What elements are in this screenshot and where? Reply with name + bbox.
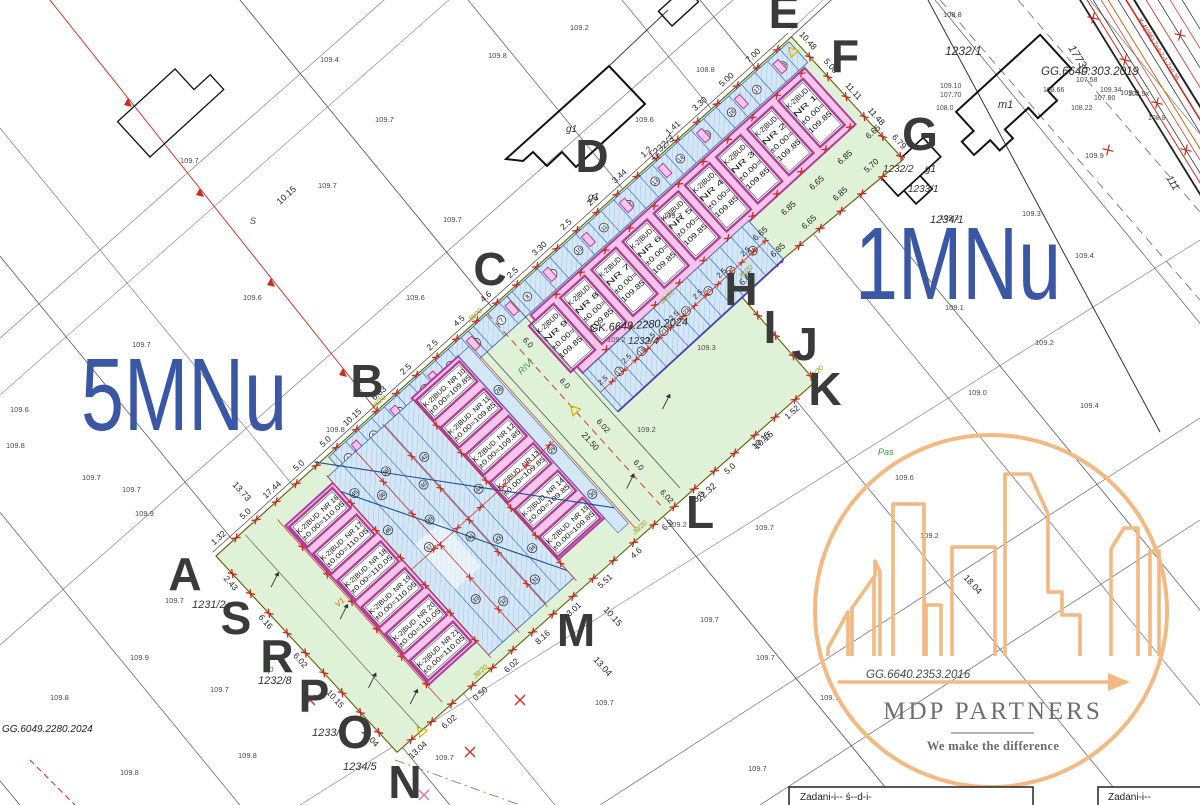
svg-text:109.7: 109.7 bbox=[318, 181, 337, 190]
svg-text:109.9: 109.9 bbox=[1085, 151, 1104, 160]
svg-text:109.7: 109.7 bbox=[663, 211, 682, 220]
svg-text:B: B bbox=[350, 355, 383, 407]
svg-text:108.22: 108.22 bbox=[1071, 105, 1093, 112]
svg-text:109.6: 109.6 bbox=[635, 115, 654, 124]
svg-text:109.7: 109.7 bbox=[375, 115, 394, 124]
svg-text:g1: g1 bbox=[925, 164, 936, 175]
svg-text:109.7: 109.7 bbox=[82, 473, 101, 482]
svg-text:S: S bbox=[250, 216, 256, 226]
svg-text:I: I bbox=[764, 301, 777, 353]
svg-text:GG.6049.2280.2024: GG.6049.2280.2024 bbox=[2, 724, 93, 735]
svg-text:A: A bbox=[168, 548, 201, 600]
svg-text:E: E bbox=[769, 0, 800, 38]
svg-text:m1: m1 bbox=[998, 99, 1013, 111]
svg-text:K: K bbox=[808, 363, 841, 415]
svg-text:109.7: 109.7 bbox=[700, 615, 719, 624]
svg-text:108.8: 108.8 bbox=[943, 10, 962, 19]
svg-text:109.8: 109.8 bbox=[238, 751, 257, 760]
svg-text:109.7: 109.7 bbox=[443, 215, 462, 224]
svg-text:109.2: 109.2 bbox=[1035, 338, 1054, 347]
svg-text:S: S bbox=[221, 592, 252, 644]
svg-text:109.9: 109.9 bbox=[135, 509, 154, 518]
svg-text:109.8: 109.8 bbox=[488, 51, 507, 60]
svg-text:107.70: 107.70 bbox=[940, 92, 962, 99]
svg-text:N: N bbox=[388, 756, 421, 805]
svg-text:109.7: 109.7 bbox=[180, 156, 199, 165]
svg-text:109.8: 109.8 bbox=[120, 768, 139, 777]
svg-text:MDP PARTNERS: MDP PARTNERS bbox=[883, 698, 1103, 725]
svg-text:P: P bbox=[299, 670, 330, 722]
svg-text:109.2: 109.2 bbox=[570, 23, 589, 32]
svg-text:107.58: 107.58 bbox=[1076, 77, 1098, 84]
svg-text:1232/2: 1232/2 bbox=[883, 164, 914, 175]
svg-text:109.8: 109.8 bbox=[50, 693, 69, 702]
svg-text:109.8: 109.8 bbox=[6, 441, 25, 450]
svg-text:109.6: 109.6 bbox=[10, 405, 29, 414]
svg-text:109.3: 109.3 bbox=[697, 343, 716, 352]
svg-text:1234/5: 1234/5 bbox=[343, 761, 378, 773]
svg-text:109.4: 109.4 bbox=[1080, 401, 1099, 410]
svg-text:109.7: 109.7 bbox=[435, 753, 454, 762]
svg-text:Zadani-i-- ś--d-i-: Zadani-i-- ś--d-i- bbox=[800, 792, 872, 803]
svg-text:109.2: 109.2 bbox=[637, 425, 656, 434]
svg-text:1233/1: 1233/1 bbox=[908, 184, 939, 195]
svg-text:107.80: 107.80 bbox=[1094, 95, 1116, 102]
svg-text:109.6: 109.6 bbox=[406, 293, 425, 302]
svg-text:109.6: 109.6 bbox=[895, 473, 914, 482]
svg-text:109.9x: 109.9x bbox=[1128, 91, 1150, 98]
svg-text:GG.6640.2353.2016: GG.6640.2353.2016 bbox=[866, 669, 971, 681]
svg-text:109.7: 109.7 bbox=[210, 685, 229, 694]
svg-text:1232/1: 1232/1 bbox=[945, 44, 982, 58]
svg-text:109.7: 109.7 bbox=[755, 523, 774, 532]
svg-text:M: M bbox=[557, 604, 595, 656]
svg-text:H: H bbox=[724, 263, 757, 315]
svg-text:109.8: 109.8 bbox=[326, 425, 345, 434]
svg-text:D: D bbox=[575, 130, 608, 182]
svg-text:108.66: 108.66 bbox=[1043, 87, 1065, 94]
svg-text:108.0: 108.0 bbox=[936, 105, 954, 112]
svg-text:5MNu: 5MNu bbox=[81, 338, 287, 452]
svg-text:1232/4: 1232/4 bbox=[628, 336, 659, 347]
svg-text:109.6: 109.6 bbox=[243, 293, 262, 302]
svg-text:We make the difference: We make the difference bbox=[927, 739, 1060, 753]
svg-text:108.9: 108.9 bbox=[1148, 115, 1166, 122]
svg-text:C: C bbox=[473, 243, 506, 295]
svg-text:g1: g1 bbox=[588, 192, 599, 203]
svg-text:F: F bbox=[831, 30, 859, 82]
svg-text:1MNu: 1MNu bbox=[855, 207, 1061, 321]
svg-text:R: R bbox=[260, 630, 293, 682]
svg-text:L: L bbox=[686, 486, 714, 538]
svg-text:109.7: 109.7 bbox=[595, 698, 614, 707]
svg-text:109.9: 109.9 bbox=[130, 653, 149, 662]
svg-text:109.10: 109.10 bbox=[940, 83, 962, 90]
svg-text:109.0: 109.0 bbox=[968, 388, 987, 397]
svg-text:109.2: 109.2 bbox=[668, 520, 687, 529]
svg-text:109.4: 109.4 bbox=[1075, 251, 1094, 260]
svg-text:109.34: 109.34 bbox=[1100, 87, 1122, 94]
svg-text:Pas: Pas bbox=[878, 447, 894, 457]
svg-text:109.7: 109.7 bbox=[122, 485, 141, 494]
svg-text:109.2: 109.2 bbox=[607, 335, 626, 344]
svg-text:O: O bbox=[337, 706, 373, 758]
svg-text:109.4: 109.4 bbox=[320, 55, 339, 64]
svg-text:108.8: 108.8 bbox=[696, 65, 715, 74]
svg-text:Zadani-i--: Zadani-i-- bbox=[1108, 792, 1151, 803]
svg-text:109.7: 109.7 bbox=[748, 764, 767, 773]
svg-text:G: G bbox=[902, 108, 938, 160]
svg-text:109.7: 109.7 bbox=[756, 653, 775, 662]
